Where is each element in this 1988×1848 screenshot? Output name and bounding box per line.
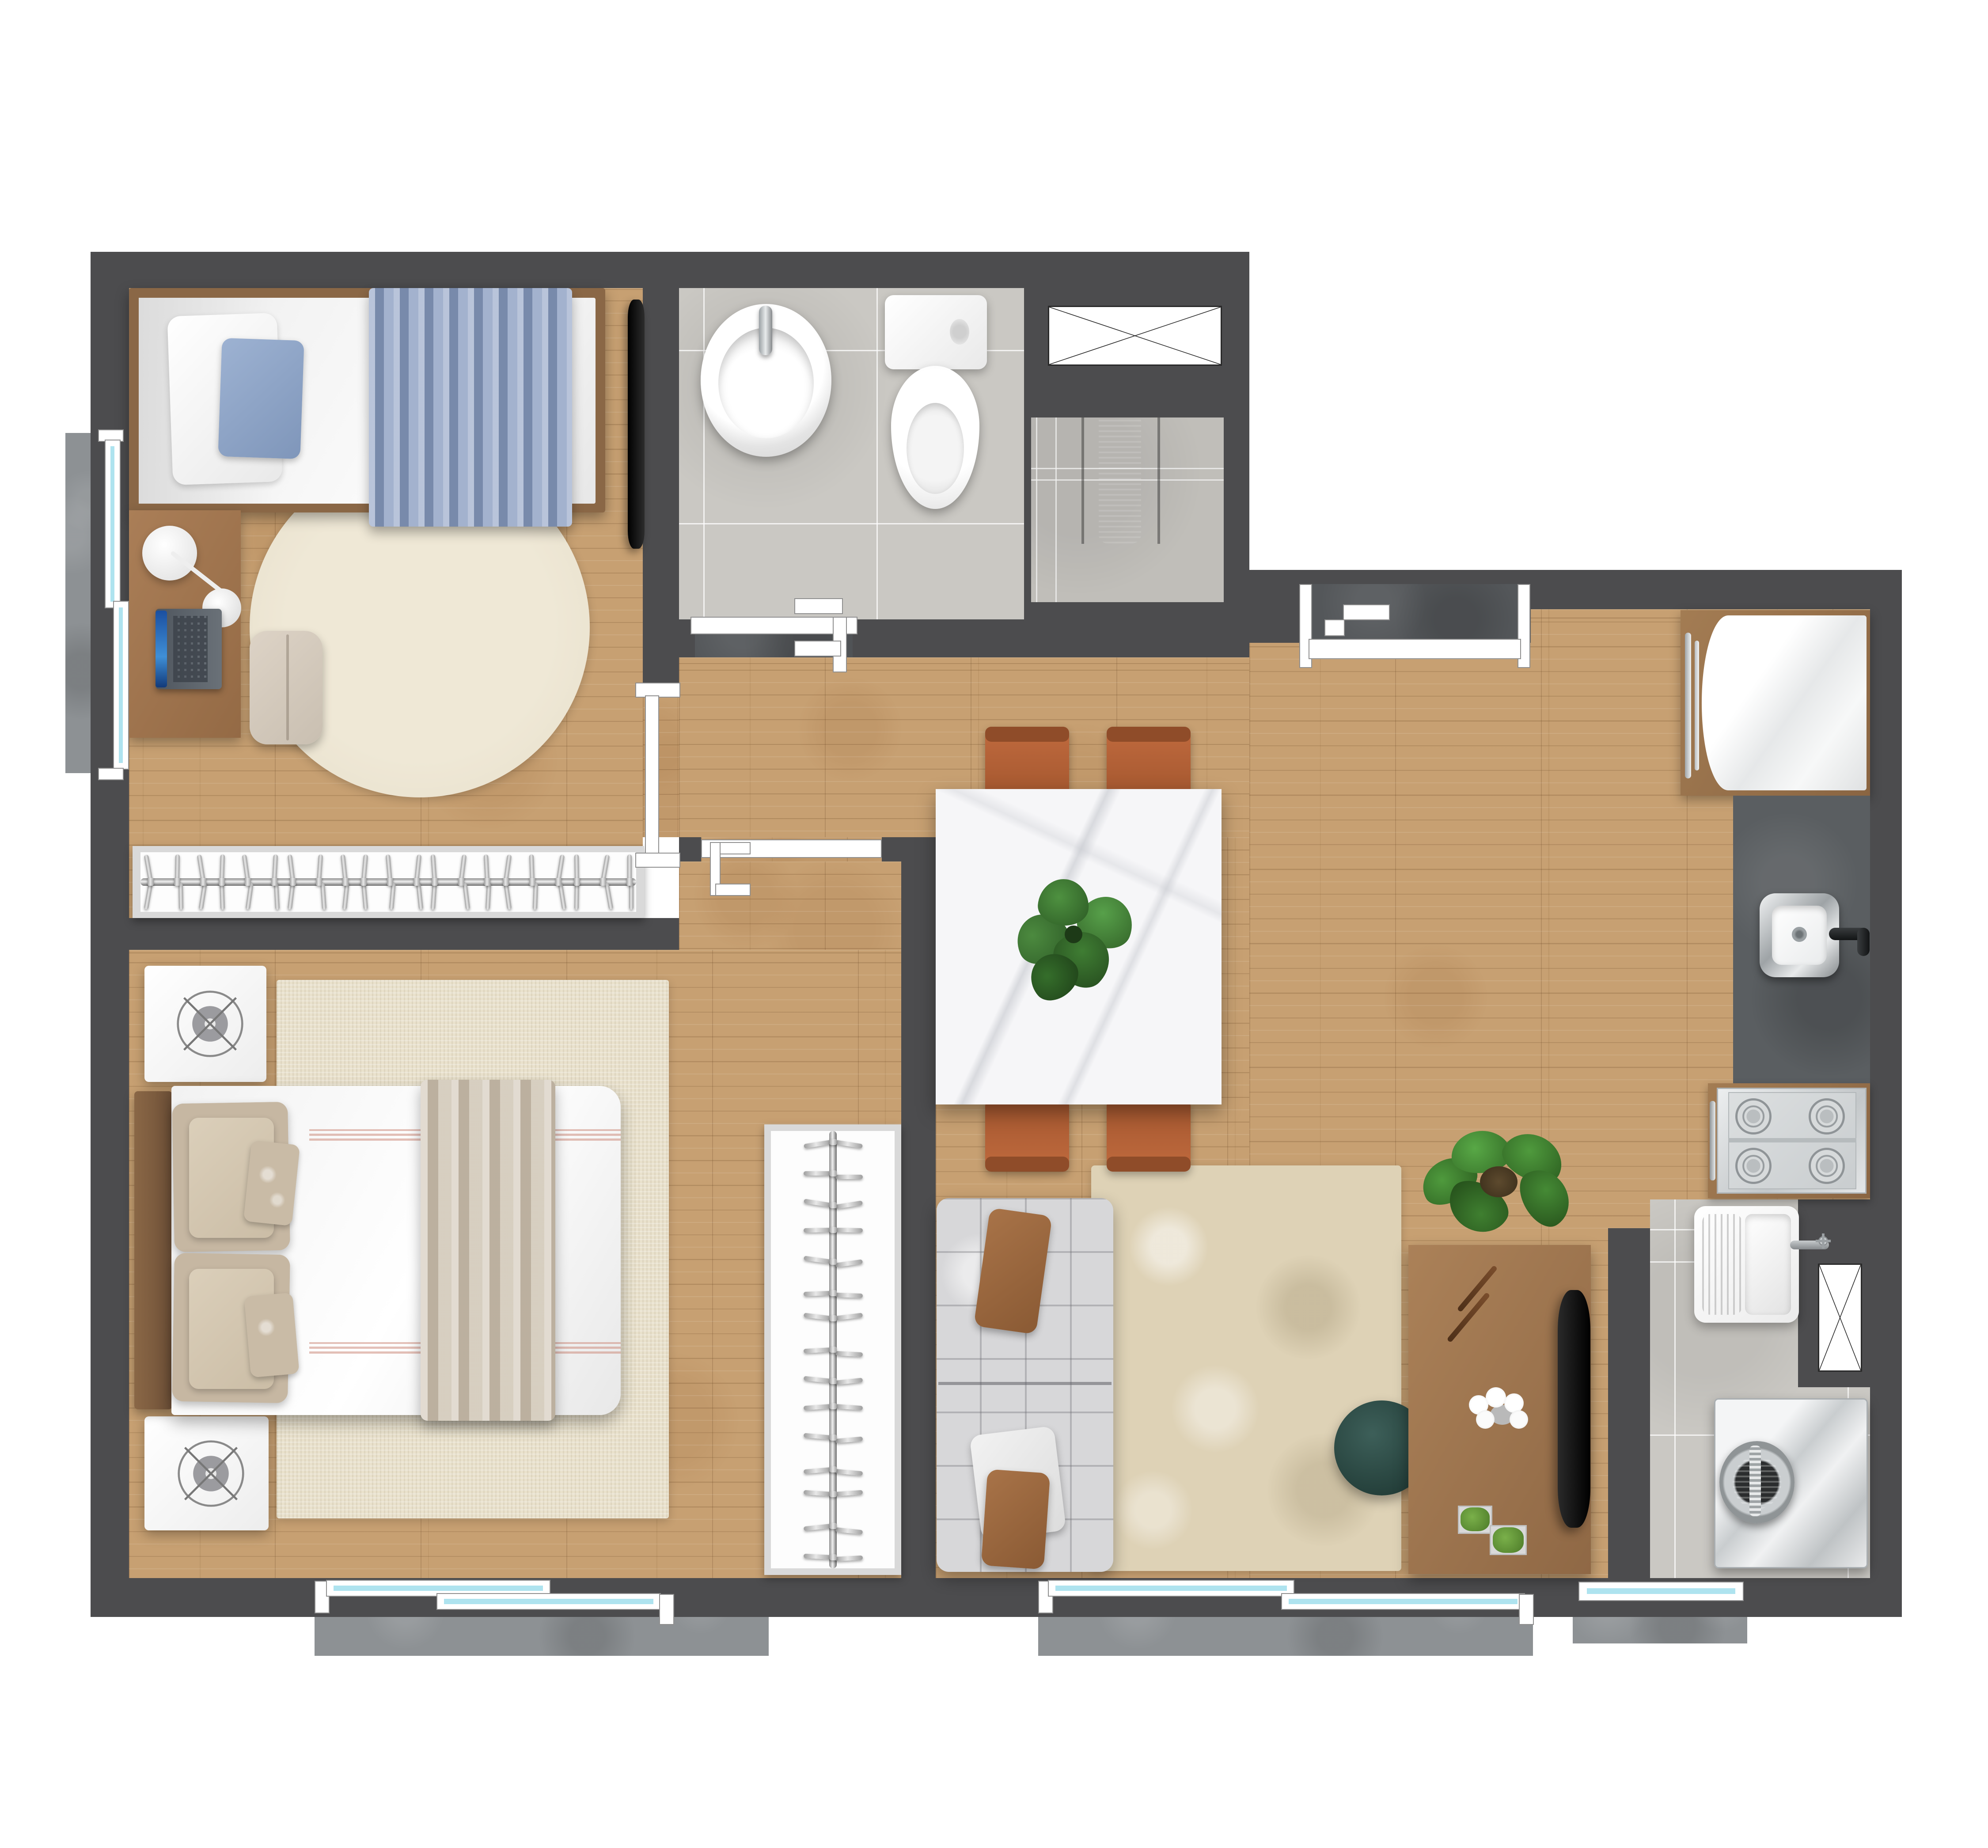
entry-door-handle-b	[1324, 619, 1345, 636]
hanger-hook	[360, 878, 367, 886]
hanger	[178, 883, 183, 910]
shower-track-left	[1081, 417, 1084, 544]
blanket-blue	[369, 288, 572, 527]
hanger-hook	[830, 1290, 837, 1296]
hanger	[533, 883, 538, 910]
hanger-hook	[830, 1315, 837, 1321]
shower-column	[1099, 416, 1141, 543]
hanger-hook	[830, 1523, 837, 1529]
hanger-hook	[503, 878, 509, 886]
laptop-keyboard	[173, 616, 208, 682]
hanger	[317, 854, 323, 881]
wall-bedroom1-master-divider	[91, 918, 679, 950]
decor-plant-pot-2-green	[1493, 1527, 1524, 1553]
toilet-button	[950, 319, 969, 345]
master-window-tab-right	[659, 1594, 674, 1625]
refrigerator-handle	[1685, 633, 1691, 778]
hanger-hook	[316, 878, 322, 886]
bathroom-door-leaf-a	[794, 598, 843, 614]
hanger	[835, 1490, 863, 1496]
hanger	[287, 854, 295, 881]
master-pillow2-small	[244, 1293, 300, 1378]
master-blanket	[421, 1080, 555, 1421]
wall-living-top	[1531, 570, 1902, 609]
hanger	[220, 854, 225, 881]
hanger-hook	[830, 1403, 837, 1409]
wall-laundry-divider	[1608, 1228, 1650, 1578]
hanger-hook	[529, 878, 535, 886]
hanger	[835, 1140, 863, 1149]
hanger	[629, 883, 634, 910]
wall-tv-bedroom1	[628, 300, 645, 549]
hanger	[804, 1433, 831, 1440]
master-door-leaf-bottom	[715, 884, 751, 896]
fan-top	[176, 990, 244, 1058]
sill-left-window	[65, 433, 92, 773]
wash-tank-faucet-handle	[1815, 1233, 1832, 1249]
hanger-hook	[458, 878, 464, 886]
living-window-glass2	[1289, 1599, 1518, 1604]
hanger	[835, 1175, 863, 1179]
hanger	[604, 883, 613, 910]
hanger-hook	[626, 878, 633, 886]
hanger	[835, 1293, 863, 1298]
hanger-hook	[830, 1434, 837, 1441]
hanger	[574, 854, 579, 881]
hanger-hook	[830, 1347, 837, 1353]
hanger-hook	[342, 878, 349, 886]
hanger	[835, 1259, 863, 1267]
hanger-hook	[600, 878, 606, 886]
hanger	[320, 883, 326, 910]
hanger	[835, 1351, 863, 1357]
sink-faucet	[759, 306, 772, 355]
hanger	[463, 883, 470, 910]
laundry-window-glass	[1587, 1588, 1735, 1594]
hanger-hook	[830, 1378, 837, 1384]
wash-tank-ribs	[1702, 1214, 1742, 1315]
hanger-hook	[148, 878, 154, 886]
master-pillow1-small	[243, 1140, 300, 1226]
hanger	[556, 854, 565, 881]
hanger	[804, 1199, 831, 1207]
hanger	[246, 883, 254, 910]
laptop-screen	[156, 611, 167, 687]
hanger	[627, 854, 632, 881]
hanger	[197, 854, 205, 881]
hanger-hook	[484, 878, 490, 886]
kitchen-faucet-drop	[1857, 928, 1870, 956]
wardrobe-bedroom1-interior	[140, 852, 636, 912]
hanger	[804, 1291, 831, 1296]
hanger-hook	[830, 1466, 837, 1472]
dining-chair-2-back	[1107, 727, 1191, 742]
wall-shower-divider	[1024, 417, 1031, 602]
wash-tank-basin	[1745, 1214, 1791, 1315]
stove-burner-1	[1735, 1098, 1772, 1135]
hanger	[835, 1228, 863, 1233]
hanger	[835, 1404, 863, 1410]
wall-bedroom1-hall-upper	[643, 252, 679, 683]
toilet-seat-inner	[907, 403, 964, 494]
hanger	[431, 854, 437, 881]
hanger-hook	[574, 878, 580, 886]
hanger	[175, 854, 180, 881]
hanger-hook	[219, 878, 225, 886]
hanger	[835, 1469, 863, 1476]
monstera-plant	[1012, 879, 1140, 1007]
hanger-hook	[830, 1491, 837, 1497]
wall-corridor-top-a	[679, 837, 701, 861]
stove-burner-4	[1809, 1148, 1845, 1184]
hanger	[274, 883, 280, 910]
shaft-x-laundry	[1818, 1264, 1862, 1372]
stool-seam	[286, 634, 289, 740]
hanger	[804, 1256, 831, 1264]
hanger	[835, 1437, 863, 1443]
hanger-hook	[830, 1170, 837, 1176]
sideboard-tv	[1558, 1290, 1590, 1528]
hanger	[804, 1404, 831, 1410]
master-door-leaf-top	[715, 842, 751, 854]
wall-right	[1870, 570, 1902, 1617]
hanger	[504, 883, 512, 910]
wall-shower-right	[1224, 417, 1249, 602]
entry-door-handle-a	[1343, 604, 1390, 620]
master-window-glass1	[334, 1586, 543, 1591]
stove-divider	[1728, 1138, 1856, 1142]
hanger	[389, 883, 396, 910]
hanger	[835, 1200, 863, 1209]
hanger	[342, 883, 349, 910]
hanger	[804, 1140, 831, 1149]
floor-plan	[0, 0, 1988, 1848]
hanger	[601, 854, 610, 881]
hanger	[272, 854, 278, 881]
hanger	[484, 854, 489, 881]
hanger	[804, 1467, 831, 1474]
entry-door-leaf	[1309, 639, 1521, 659]
shag-rug-living	[1091, 1165, 1401, 1571]
dining-chair-1-back	[985, 727, 1069, 742]
window-left-glass2	[119, 607, 123, 763]
hanger	[341, 854, 348, 881]
hanger	[835, 1556, 863, 1561]
sofa-pillow-brown-bottom	[981, 1469, 1051, 1569]
dining-chair-4-back	[1107, 1157, 1191, 1172]
bedroom1-door-leaf	[645, 695, 659, 855]
hanger	[242, 854, 250, 881]
stove-burner-2	[1809, 1098, 1845, 1135]
hanger	[414, 854, 421, 881]
hanger-hook	[432, 878, 438, 886]
hanger	[199, 883, 207, 910]
hanger-hook	[830, 1139, 837, 1145]
hanger	[804, 1490, 831, 1496]
window-left-tab-bottom	[98, 768, 124, 780]
hanger-hook	[290, 878, 296, 886]
wall-bath-bottom-b	[1024, 602, 1249, 657]
hanger-hook	[830, 1227, 837, 1233]
shower-track-right	[1157, 417, 1160, 544]
hanger-hook	[414, 878, 420, 886]
hanger	[486, 883, 491, 910]
wardrobe-master-interior	[771, 1131, 895, 1568]
kitchen-sink-drain	[1792, 927, 1807, 942]
hanger	[144, 883, 153, 910]
hanger	[220, 883, 225, 910]
hanger	[361, 854, 368, 881]
hanger	[835, 1527, 863, 1534]
living-window-tab-right	[1519, 1594, 1534, 1625]
hanger	[529, 854, 535, 881]
hanger	[835, 1313, 863, 1320]
master-headboard	[134, 1091, 172, 1409]
hanger-hook	[387, 878, 393, 886]
refrigerator-handle-2	[1695, 641, 1699, 770]
hanger-hook	[830, 1554, 837, 1560]
hanger-hook	[271, 878, 277, 886]
decor-plant-pot-1-green	[1461, 1507, 1490, 1531]
hanger	[804, 1554, 831, 1560]
wall-living-divider	[901, 837, 936, 1578]
refrigerator	[1702, 615, 1867, 790]
desk-lamp-head	[142, 526, 197, 581]
shaft-x-top	[1048, 306, 1222, 366]
living-window-glass1	[1055, 1586, 1287, 1591]
hanger	[804, 1524, 831, 1531]
hanger	[287, 883, 295, 910]
hanger	[804, 1171, 831, 1176]
hanger-hook	[245, 878, 251, 886]
hanger-hook	[830, 1202, 837, 1208]
hanger	[459, 854, 467, 881]
washer-detail-strip	[1749, 1446, 1761, 1516]
window-left-glass1	[110, 446, 114, 602]
hanger	[144, 854, 153, 881]
hanger	[804, 1376, 831, 1383]
hanger-hook	[174, 878, 180, 886]
hanger	[431, 883, 437, 910]
dining-chair-3-back	[985, 1157, 1069, 1172]
hanger	[558, 883, 566, 910]
bathroom-door-leaf-b	[794, 641, 841, 656]
decor-flowers	[1469, 1387, 1535, 1434]
hanger	[804, 1228, 831, 1233]
master-window-glass2	[444, 1599, 653, 1604]
pillow-blue	[218, 338, 304, 459]
hanger	[361, 883, 368, 910]
hanger	[804, 1313, 831, 1320]
hanger	[574, 883, 579, 910]
hanger-hook	[200, 878, 206, 886]
stove-burner-3	[1735, 1148, 1772, 1184]
hanger-hook	[555, 878, 561, 886]
floor-plant	[1420, 1129, 1579, 1237]
bedroom1-door-tab-bottom	[635, 853, 680, 868]
hanger-hook	[830, 1259, 837, 1265]
hanger	[504, 854, 512, 881]
hanger	[386, 854, 392, 881]
stove-handle	[1710, 1101, 1715, 1180]
hanger	[835, 1378, 863, 1385]
hanger	[416, 883, 423, 910]
fan-bottom	[177, 1439, 245, 1508]
toilet-tank	[885, 295, 987, 369]
sofa-center-seam	[938, 1382, 1112, 1385]
hanger	[804, 1347, 831, 1353]
